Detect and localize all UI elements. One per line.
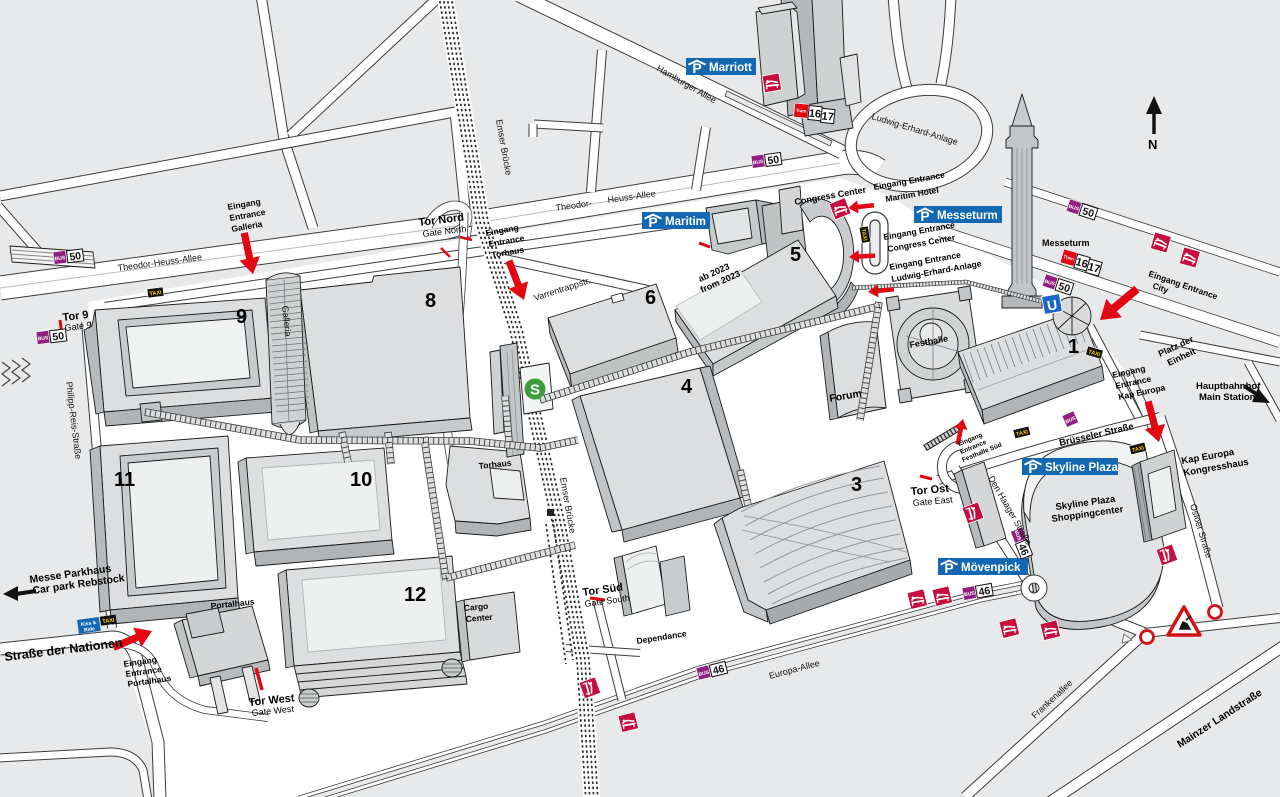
svg-text:Mövenpick: Mövenpick xyxy=(961,562,1021,574)
svg-text:Main Station: Main Station xyxy=(1199,392,1256,403)
svg-text:Messeturm: Messeturm xyxy=(1042,238,1090,248)
svg-text:P: P xyxy=(692,60,701,76)
svg-text:1: 1 xyxy=(1068,336,1079,358)
svg-text:N: N xyxy=(1148,137,1157,152)
svg-text:8: 8 xyxy=(425,290,436,312)
svg-text:3: 3 xyxy=(851,474,862,496)
svg-text:12: 12 xyxy=(404,584,426,606)
svg-text:Hauptbahnhof: Hauptbahnhof xyxy=(1196,381,1261,392)
svg-text:10: 10 xyxy=(350,469,372,491)
svg-text:Skyline Plaza: Skyline Plaza xyxy=(1045,462,1118,474)
svg-text:Cargo: Cargo xyxy=(463,601,488,613)
svg-text:P: P xyxy=(920,208,929,224)
svg-text:Marriott: Marriott xyxy=(709,62,752,74)
svg-text:P: P xyxy=(1028,460,1037,476)
svg-text:4: 4 xyxy=(681,376,693,398)
svg-text:S: S xyxy=(530,382,540,399)
svg-text:5: 5 xyxy=(790,244,801,266)
svg-text:Maritim: Maritim xyxy=(665,216,706,228)
svg-text:P: P xyxy=(648,214,657,230)
svg-text:11: 11 xyxy=(114,469,135,491)
svg-text:9: 9 xyxy=(236,306,247,328)
svg-text:6: 6 xyxy=(645,287,656,309)
svg-text:P: P xyxy=(944,560,953,576)
